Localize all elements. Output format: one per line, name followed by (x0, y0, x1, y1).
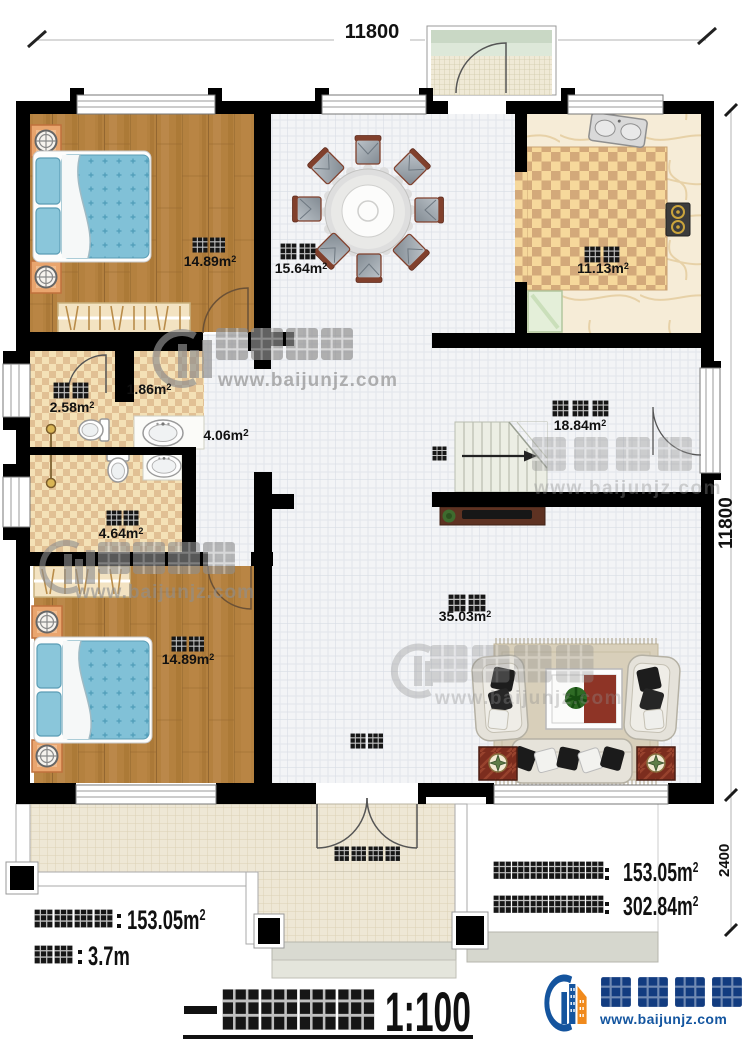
svg-text:www.baijunjz.com: www.baijunjz.com (533, 478, 722, 499)
svg-text:3.7m: 3.7m (88, 940, 130, 970)
svg-text:14.89m2: 14.89m2 (184, 253, 237, 269)
svg-text:www.baijunjz.com: www.baijunjz.com (217, 370, 398, 391)
svg-text:4.06m2: 4.06m2 (203, 427, 249, 443)
svg-text:153.05m2: 153.05m2 (127, 904, 206, 934)
svg-text:www.baijunjz.com: www.baijunjz.com (599, 1011, 727, 1027)
svg-text:4.64m2: 4.64m2 (99, 525, 144, 541)
svg-text:2.58m2: 2.58m2 (50, 399, 95, 415)
svg-text:11800: 11800 (345, 21, 400, 43)
svg-text:15.64m2: 15.64m2 (275, 260, 328, 276)
svg-text:18.84m2: 18.84m2 (554, 417, 607, 433)
svg-text:14.89m2: 14.89m2 (162, 651, 215, 667)
svg-text:www.baijunjz.com: www.baijunjz.com (434, 688, 623, 709)
svg-text:2400: 2400 (716, 844, 733, 877)
svg-text:1.86m2: 1.86m2 (127, 381, 172, 397)
svg-text:302.84m2: 302.84m2 (623, 892, 698, 921)
svg-text:11800: 11800 (716, 497, 737, 549)
svg-text:11.13m2: 11.13m2 (577, 260, 629, 276)
svg-text:153.05m2: 153.05m2 (623, 858, 698, 887)
svg-text:1:100: 1:100 (385, 980, 471, 1042)
svg-text:www.baijunjz.com: www.baijunjz.com (74, 582, 255, 603)
svg-text:35.03m2: 35.03m2 (439, 608, 492, 624)
